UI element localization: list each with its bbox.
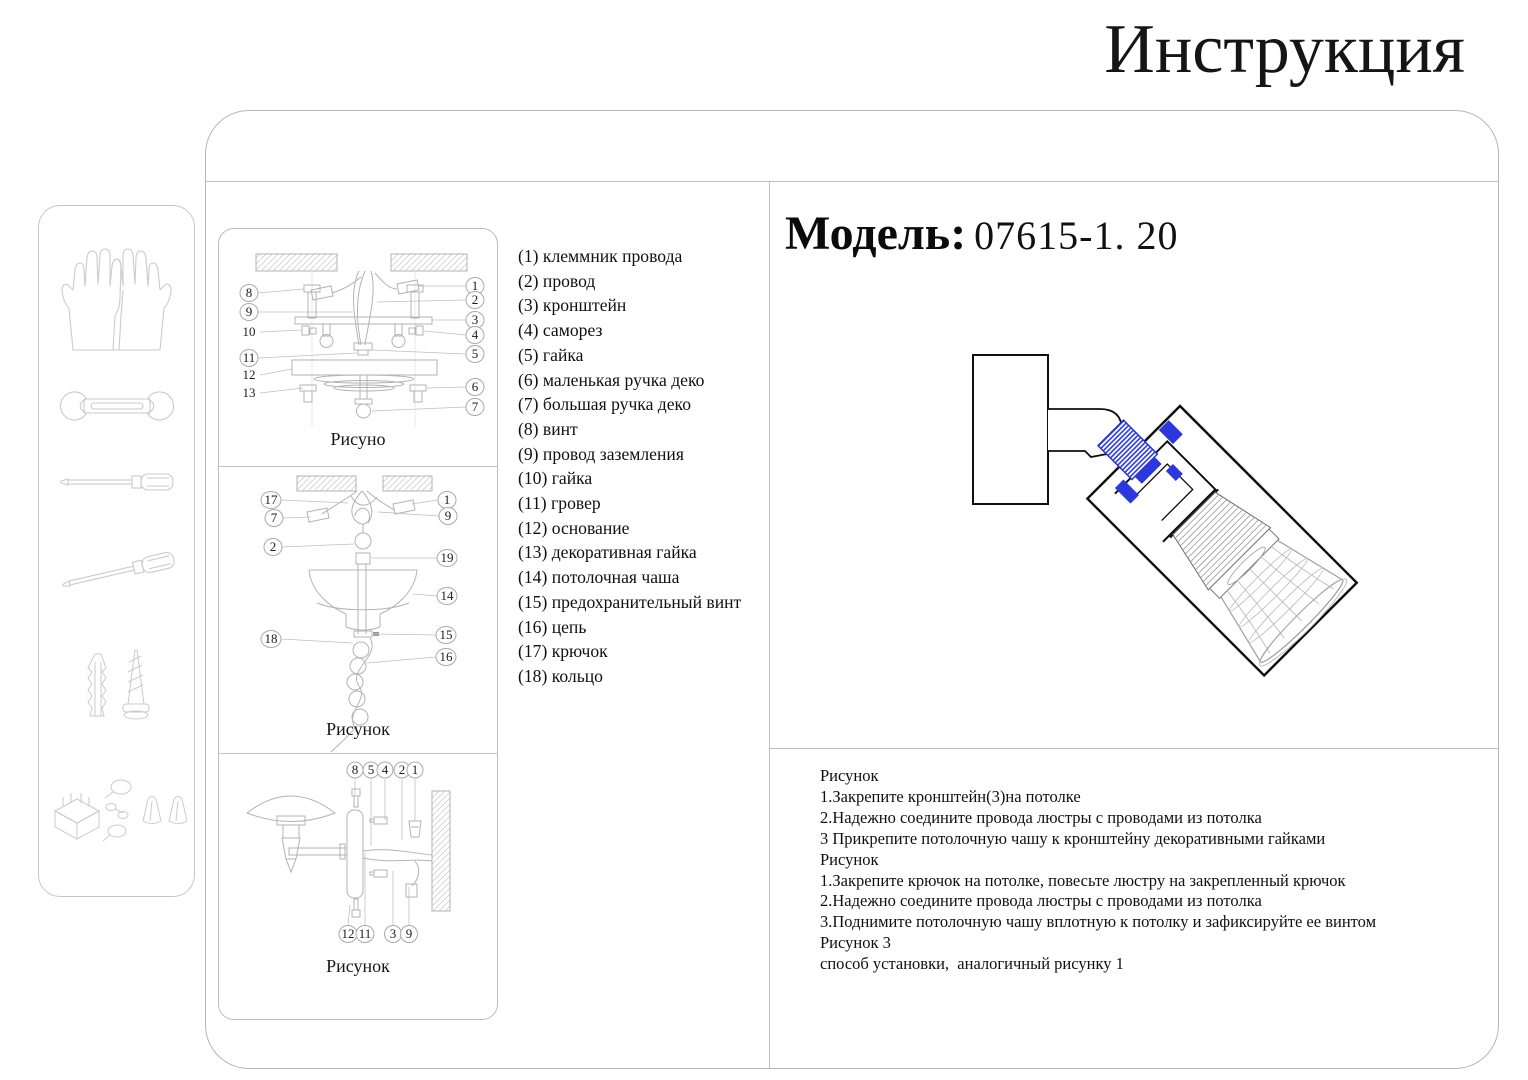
- callout-number: 18: [265, 631, 278, 646]
- callout-number: 1: [472, 278, 479, 293]
- instruction-line: 1.Закрепите кронштейн(3)на потолке: [820, 787, 1510, 808]
- figure2-hook-chain-diagram: 17 7 2 18 1 9 19 14 15 16: [219, 466, 497, 753]
- callout-number: 9: [406, 926, 413, 941]
- callout-number: 2: [472, 292, 479, 307]
- spotlight-technical-drawing: [950, 335, 1420, 695]
- tools-sidebar: [38, 205, 195, 897]
- part-item: (9) провод заземления: [518, 442, 756, 467]
- part-item: (11) гровер: [518, 491, 756, 516]
- part-item: (6) маленькая ручка деко: [518, 368, 756, 393]
- part-item: (10) гайка: [518, 466, 756, 491]
- part-item: (7) большая ручка деко: [518, 392, 756, 417]
- instruction-line: 2.Надежно соедините провода люстры с про…: [820, 808, 1510, 829]
- callout-number: 4: [382, 762, 389, 777]
- callout-number: 9: [445, 508, 452, 523]
- part-item: (13) декоративная гайка: [518, 540, 756, 565]
- callout-number: 7: [271, 510, 278, 525]
- figures-panel: 8 9 10 11 12 13 1 2 3 4 5 6 7 Рисуно: [218, 228, 498, 1020]
- callout-number: 12: [342, 926, 355, 941]
- callout-number: 11: [243, 350, 256, 365]
- flat-screwdriver-icon: [57, 468, 177, 498]
- wrench-icon: [57, 381, 177, 431]
- callout-number: 2: [270, 539, 277, 554]
- callout-number: 13: [243, 385, 256, 400]
- callout-number: 16: [440, 649, 454, 664]
- fasteners-icon: [47, 771, 187, 861]
- parts-list: (1) клеммник провода (2) провод (3) крон…: [518, 244, 756, 689]
- callout-number: 12: [243, 367, 256, 382]
- figure2-caption: Рисунок: [219, 719, 497, 740]
- callout-number: 3: [472, 312, 479, 327]
- callout-number: 6: [472, 379, 479, 394]
- anchor-and-screw-icon: [77, 646, 157, 726]
- gloves-icon: [59, 246, 174, 358]
- callout-number: 14: [441, 588, 455, 603]
- part-item: (12) основание: [518, 516, 756, 541]
- installation-instructions: Рисунок 1.Закрепите кронштейн(3)на потол…: [820, 766, 1510, 975]
- part-item: (1) клеммник провода: [518, 244, 756, 269]
- header-rule: [206, 181, 1498, 182]
- vertical-divider: [769, 181, 770, 1068]
- figure3-wall-sconce-diagram: 8 5 4 2 1 12 11 3 9: [219, 753, 497, 1019]
- model-value: 07615-1. 20: [974, 213, 1178, 258]
- callout-number: 8: [246, 285, 253, 300]
- callout-number: 10: [243, 324, 256, 339]
- model-label: Модель:: [785, 207, 966, 260]
- part-item: (17) крючок: [518, 639, 756, 664]
- instruction-line: 3.Поднимите потолочную чашу вплотную к п…: [820, 912, 1510, 933]
- callout-number: 1: [444, 492, 451, 507]
- page-title: Инструкция: [1104, 11, 1465, 88]
- callout-number: 19: [441, 550, 454, 565]
- model-line: Модель:07615-1. 20: [785, 206, 1179, 261]
- part-item: (16) цепь: [518, 615, 756, 640]
- instruction-line: 1.Закрепите крючок на потолке, повесьте …: [820, 871, 1510, 892]
- callout-number: 9: [246, 304, 253, 319]
- callout-number: 11: [359, 926, 372, 941]
- callout-number: 1: [412, 762, 419, 777]
- part-item: (2) провод: [518, 269, 756, 294]
- instruction-line: способ установки, аналогичный рисунку 1: [820, 954, 1510, 975]
- figure3-caption: Рисунок: [219, 956, 497, 977]
- part-item: (18) кольцо: [518, 664, 756, 689]
- callout-number: 3: [390, 926, 397, 941]
- spotlight-base: [973, 355, 1048, 504]
- callout-number: 5: [368, 762, 375, 777]
- second-screwdriver-icon: [55, 536, 180, 606]
- instruction-sheet: Инструкция: [0, 0, 1528, 1080]
- callout-number: 5: [472, 346, 479, 361]
- callout-number: 17: [265, 492, 279, 507]
- figure1-caption: Рисуно: [219, 429, 497, 450]
- part-item: (4) саморез: [518, 318, 756, 343]
- part-item: (3) кронштейн: [518, 293, 756, 318]
- instruction-line: 3 Прикрепите потолочную чашу к кронштейн…: [820, 829, 1510, 850]
- part-item: (5) гайка: [518, 343, 756, 368]
- callout-number: 7: [472, 399, 479, 414]
- part-item: (8) винт: [518, 417, 756, 442]
- callout-number: 8: [352, 762, 359, 777]
- part-item: (15) предохранительный винт: [518, 590, 756, 615]
- instruction-line: Рисунок: [820, 850, 1510, 871]
- callout-number: 2: [399, 762, 406, 777]
- callout-number: 15: [440, 627, 453, 642]
- callout-number: 4: [472, 327, 479, 342]
- instruction-line: 2.Надежно соедините провода люстры с про…: [820, 891, 1510, 912]
- instruction-line: Рисунок: [820, 766, 1510, 787]
- horizontal-divider: [769, 748, 1498, 749]
- part-item: (14) потолочная чаша: [518, 565, 756, 590]
- figure1-callouts: 8 9 10 11 12 13 1 2 3 4 5 6 7: [240, 278, 484, 416]
- instruction-line: Рисунок 3: [820, 933, 1510, 954]
